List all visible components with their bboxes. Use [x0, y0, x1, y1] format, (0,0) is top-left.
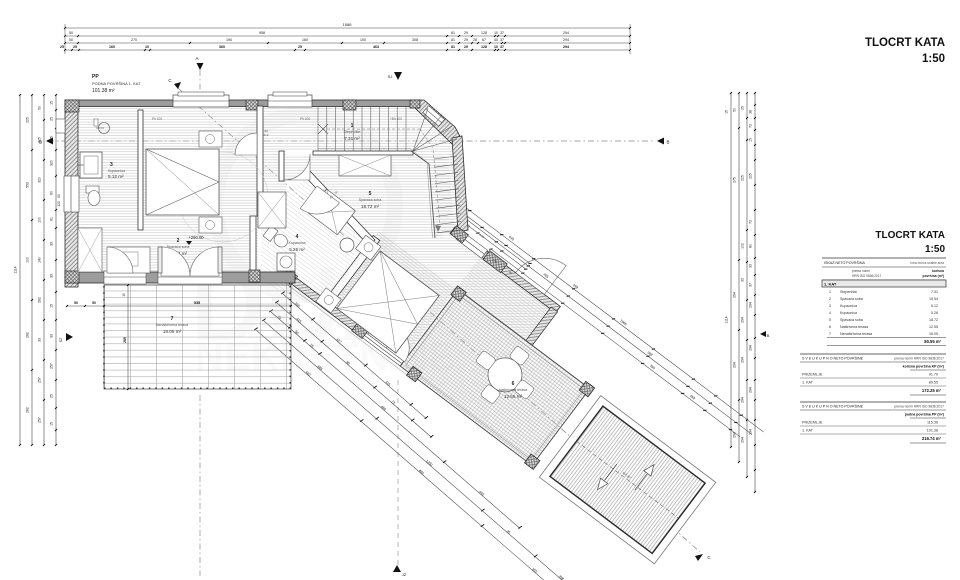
svg-text:29: 29 — [464, 38, 468, 42]
svg-text:S V E U K U P N O NETO POVRŠI: S V E U K U P N O NETO POVRŠINE — [802, 356, 864, 361]
svg-text:5.12 m²: 5.12 m² — [108, 174, 124, 179]
svg-text:25: 25 — [73, 45, 77, 49]
svg-text:PRIZEMLJE: PRIZEMLJE — [802, 373, 823, 377]
svg-text:15: 15 — [50, 422, 54, 426]
svg-text:294: 294 — [563, 38, 569, 42]
svg-text:33: 33 — [741, 278, 745, 282]
svg-text:67: 67 — [482, 38, 486, 42]
svg-text:Stepenište: Stepenište — [344, 130, 361, 134]
svg-text:100: 100 — [38, 217, 42, 223]
svg-text:320: 320 — [38, 177, 42, 183]
svg-text:16.05 m²: 16.05 m² — [163, 329, 182, 334]
svg-text:212: 212 — [263, 133, 268, 137]
svg-text:HRN ISO 9836:2017: HRN ISO 9836:2017 — [852, 274, 881, 278]
svg-text:4: 4 — [296, 234, 299, 240]
svg-text:Natkrivena terasa: Natkrivena terasa — [499, 388, 527, 392]
svg-text:4: 4 — [829, 311, 831, 315]
svg-text:360: 360 — [219, 45, 225, 49]
svg-text:50: 50 — [733, 108, 737, 112]
svg-text:2: 2 — [829, 297, 831, 301]
svg-text:Kupaonica: Kupaonica — [840, 304, 857, 308]
svg-text:površina (m²): površina (m²) — [923, 274, 944, 278]
svg-text:Spavaća soba: Spavaća soba — [359, 198, 382, 202]
svg-text:12.55: 12.55 — [929, 325, 938, 329]
svg-text:463: 463 — [373, 45, 379, 49]
svg-text:73: 73 — [749, 124, 753, 128]
svg-text:172.25 m²: 172.25 m² — [922, 388, 942, 393]
svg-text:285: 285 — [123, 337, 127, 343]
svg-text:B: B — [666, 140, 669, 145]
svg-text:81: 81 — [451, 31, 455, 35]
svg-text:7: 7 — [829, 332, 831, 336]
svg-text:Stepenište: Stepenište — [840, 290, 857, 294]
svg-text:Kupaonica: Kupaonica — [289, 241, 306, 245]
svg-text:5.12: 5.12 — [931, 304, 938, 308]
svg-text:28: 28 — [473, 38, 477, 42]
svg-text:262: 262 — [26, 407, 30, 413]
svg-text:25: 25 — [50, 117, 54, 121]
svg-text:10: 10 — [494, 31, 498, 35]
svg-text:25: 25 — [298, 45, 302, 49]
svg-text:60: 60 — [57, 194, 61, 198]
svg-text:prema normi HRN ISO 9836:2017: prema normi HRN ISO 9836:2017 — [894, 357, 944, 361]
svg-text:294: 294 — [749, 387, 753, 393]
svg-text:25: 25 — [741, 106, 745, 110]
svg-text:102: 102 — [741, 243, 745, 249]
svg-text:15: 15 — [725, 110, 729, 114]
svg-text:5: 5 — [829, 318, 831, 322]
svg-text:7.31: 7.31 — [931, 290, 938, 294]
svg-text:1. KAT: 1. KAT — [824, 282, 837, 287]
svg-text:18.72: 18.72 — [929, 318, 938, 322]
svg-text:37: 37 — [749, 283, 753, 287]
svg-text:262: 262 — [26, 332, 30, 338]
svg-text:1586: 1586 — [343, 22, 353, 27]
svg-text:3: 3 — [829, 304, 831, 308]
svg-text:1. KAT: 1. KAT — [802, 381, 814, 385]
svg-text:intra muros usable area: intra muros usable area — [911, 261, 945, 265]
svg-text:257: 257 — [38, 417, 42, 423]
svg-text:18.72 m²: 18.72 m² — [361, 204, 380, 209]
svg-text:29: 29 — [464, 45, 468, 49]
svg-text:73: 73 — [749, 220, 753, 224]
svg-text:115.36: 115.36 — [927, 421, 938, 425]
svg-text:91.70: 91.70 — [929, 373, 938, 377]
svg-text:podna površina PP (m²): podna površina PP (m²) — [905, 413, 944, 417]
svg-text:JZ: JZ — [402, 572, 407, 577]
svg-text:16.05: 16.05 — [929, 332, 938, 336]
svg-text:100: 100 — [360, 38, 366, 42]
svg-text:10: 10 — [145, 45, 149, 49]
svg-text:SJ: SJ — [388, 74, 393, 79]
svg-text:50: 50 — [38, 106, 42, 110]
svg-text:25: 25 — [60, 45, 64, 49]
svg-text:275: 275 — [733, 177, 737, 183]
svg-text:15: 15 — [749, 138, 753, 142]
svg-text:korisna površina KP (m²): korisna površina KP (m²) — [903, 365, 944, 369]
svg-text:128: 128 — [481, 31, 487, 35]
svg-text:PP: PP — [92, 74, 99, 80]
svg-text:294: 294 — [749, 302, 753, 308]
svg-text:80.55 m²: 80.55 m² — [924, 339, 941, 344]
svg-text:81: 81 — [451, 38, 455, 42]
svg-text:37: 37 — [500, 38, 504, 42]
svg-text:korisna: korisna — [932, 269, 944, 273]
svg-text:A: A — [195, 56, 198, 61]
svg-text:294: 294 — [749, 345, 753, 351]
svg-text:225: 225 — [749, 173, 753, 179]
svg-text:15: 15 — [50, 101, 54, 105]
svg-text:100: 100 — [26, 257, 30, 263]
svg-text:TLOCRT KATA: TLOCRT KATA — [865, 37, 945, 49]
svg-text:1114: 1114 — [14, 266, 18, 273]
svg-text:80.55: 80.55 — [929, 381, 938, 385]
svg-text:1. KAT: 1. KAT — [802, 429, 814, 433]
svg-text:37: 37 — [500, 45, 504, 49]
svg-text:81: 81 — [451, 45, 455, 49]
svg-text:140: 140 — [38, 257, 42, 263]
svg-text:Nenatkrivena terasa: Nenatkrivena terasa — [156, 323, 188, 327]
svg-text:33: 33 — [50, 242, 54, 246]
svg-text:80: 80 — [749, 244, 753, 248]
svg-text:prema normi: prema normi — [852, 269, 870, 273]
svg-text:257: 257 — [38, 377, 42, 383]
svg-text:120: 120 — [57, 201, 61, 207]
svg-text:6: 6 — [512, 381, 515, 387]
svg-text:Natkrivena terasa: Natkrivena terasa — [840, 325, 868, 329]
svg-text:5.26: 5.26 — [931, 311, 938, 315]
svg-text:33: 33 — [749, 264, 753, 268]
svg-text:10: 10 — [494, 45, 498, 49]
svg-text:Ph 100: Ph 100 — [300, 117, 310, 121]
svg-text:262: 262 — [38, 297, 42, 303]
svg-text:216.74 m²: 216.74 m² — [922, 436, 942, 441]
svg-text:1: 1 — [829, 290, 831, 294]
svg-text:Spavaća soba: Spavaća soba — [840, 318, 863, 322]
svg-text:535: 535 — [194, 301, 200, 305]
svg-text:294: 294 — [741, 397, 745, 403]
svg-text:Ph 100: Ph 100 — [152, 117, 162, 121]
svg-text:33: 33 — [38, 338, 42, 342]
svg-text:294: 294 — [563, 45, 569, 49]
svg-text:1:50: 1:50 — [922, 53, 945, 65]
svg-text:160: 160 — [109, 45, 115, 49]
svg-text:S V E U K U P N O NETO POVRŠI: S V E U K U P N O NETO POVRŠINE — [802, 404, 864, 409]
svg-text:190: 190 — [226, 38, 232, 42]
svg-text:B: B — [767, 333, 770, 338]
svg-text:225: 225 — [26, 117, 30, 123]
svg-text:308: 308 — [412, 38, 418, 42]
svg-text:33: 33 — [50, 334, 54, 338]
svg-text:3: 3 — [110, 162, 113, 168]
svg-text:B: B — [39, 140, 42, 145]
svg-text:prema normi HRN ISO 9836:2017: prema normi HRN ISO 9836:2017 — [894, 405, 944, 409]
svg-text:270: 270 — [131, 38, 137, 42]
svg-text:ISKAZ NETO POVRŠINA: ISKAZ NETO POVRŠINA — [824, 260, 865, 265]
svg-text:1:50: 1:50 — [925, 244, 945, 255]
svg-text:40: 40 — [494, 38, 498, 42]
svg-text:225: 225 — [741, 175, 745, 181]
svg-text:294: 294 — [733, 362, 737, 368]
svg-text:6: 6 — [829, 325, 831, 329]
svg-text:TLOCRT KATA: TLOCRT KATA — [875, 230, 945, 241]
svg-text:257: 257 — [50, 363, 54, 369]
svg-text:50: 50 — [92, 301, 96, 305]
svg-text:15: 15 — [50, 304, 54, 308]
svg-text:15: 15 — [122, 293, 126, 297]
svg-text:294: 294 — [749, 429, 753, 435]
svg-text:29: 29 — [464, 31, 468, 35]
svg-text:60: 60 — [50, 191, 54, 195]
svg-text:128: 128 — [481, 45, 487, 49]
svg-text:50: 50 — [69, 38, 73, 42]
svg-text:PRIZEMLJE: PRIZEMLJE — [802, 421, 823, 425]
svg-text:Kupaonica: Kupaonica — [108, 169, 125, 173]
svg-text:294: 294 — [563, 31, 569, 35]
svg-text:37: 37 — [500, 31, 504, 35]
svg-text:294: 294 — [741, 437, 745, 443]
svg-text:50: 50 — [74, 301, 78, 305]
svg-text:2: 2 — [177, 238, 180, 244]
svg-text:Spavaća soba: Spavaća soba — [840, 297, 863, 301]
svg-text:1: 1 — [351, 123, 354, 129]
svg-text:50: 50 — [69, 31, 73, 35]
svg-text:180: 180 — [302, 38, 308, 42]
svg-text:553: 553 — [26, 182, 30, 188]
svg-text:101.38 m²: 101.38 m² — [92, 88, 115, 94]
svg-text:+Bh 100: +Bh 100 — [390, 117, 402, 121]
svg-text:294: 294 — [733, 292, 737, 298]
svg-text:Nenatkrivena terasa: Nenatkrivena terasa — [840, 332, 872, 336]
svg-text:101.38: 101.38 — [927, 429, 938, 433]
svg-text:294: 294 — [741, 317, 745, 323]
svg-text:25: 25 — [50, 394, 54, 398]
svg-text:5.26 m²: 5.26 m² — [289, 247, 305, 252]
svg-text:38: 38 — [749, 110, 753, 114]
svg-text:320: 320 — [50, 160, 54, 166]
svg-text:+290.00: +290.00 — [188, 235, 204, 240]
svg-text:294: 294 — [741, 357, 745, 363]
svg-text:958: 958 — [259, 31, 265, 35]
svg-text:7.31 m²: 7.31 m² — [344, 136, 360, 141]
svg-text:PODNA POVRŠINA 1. KAT: PODNA POVRŠINA 1. KAT — [92, 81, 141, 86]
svg-text:15.54: 15.54 — [929, 297, 938, 301]
svg-text:Kupaonica: Kupaonica — [840, 311, 857, 315]
svg-text:33: 33 — [50, 274, 54, 278]
svg-text:1114: 1114 — [725, 316, 729, 323]
svg-text:61: 61 — [50, 217, 54, 221]
svg-text:12.55 m²: 12.55 m² — [504, 394, 523, 399]
svg-text:5: 5 — [369, 191, 372, 197]
svg-text:7: 7 — [171, 316, 174, 322]
